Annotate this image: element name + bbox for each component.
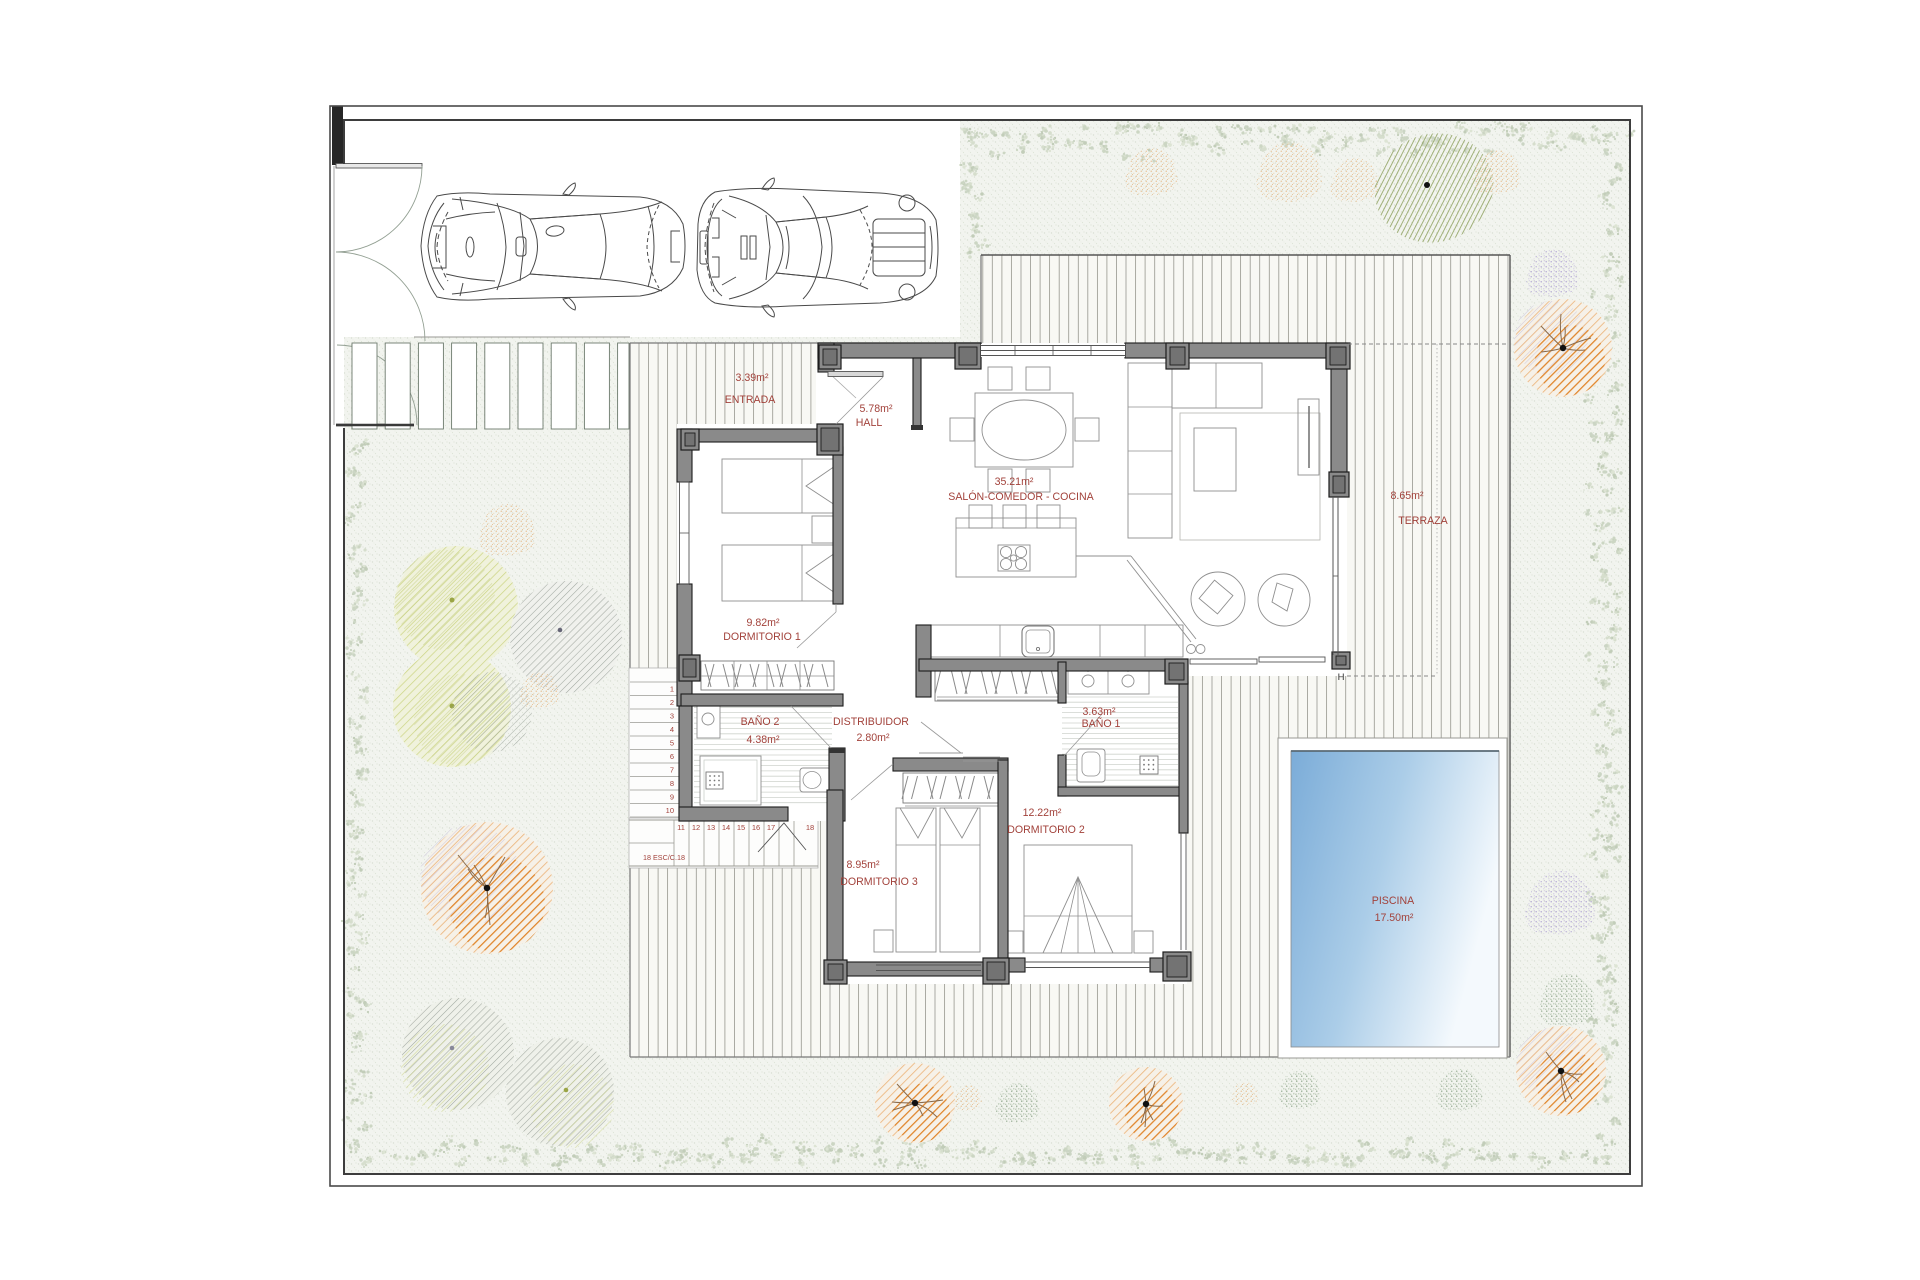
svg-text:8.95m²: 8.95m² xyxy=(847,859,880,871)
svg-text:8.65m²: 8.65m² xyxy=(1391,490,1424,502)
svg-text:17: 17 xyxy=(767,823,775,832)
svg-text:12.22m²: 12.22m² xyxy=(1023,807,1062,819)
svg-text:9: 9 xyxy=(670,793,674,802)
svg-text:DORMITORIO 2: DORMITORIO 2 xyxy=(1007,824,1085,836)
svg-text:2: 2 xyxy=(670,698,674,707)
svg-text:SALÓN-COMEDOR - COCINA: SALÓN-COMEDOR - COCINA xyxy=(948,490,1094,503)
svg-text:11: 11 xyxy=(677,823,685,832)
svg-text:13: 13 xyxy=(707,823,715,832)
svg-text:BAÑO 2: BAÑO 2 xyxy=(741,715,780,728)
svg-text:HALL: HALL xyxy=(856,417,883,429)
svg-text:18 ESC/C.18: 18 ESC/C.18 xyxy=(643,853,685,862)
svg-text:2.80m²: 2.80m² xyxy=(857,732,890,744)
svg-text:5.78m²: 5.78m² xyxy=(860,403,893,415)
svg-text:PISCINA: PISCINA xyxy=(1372,895,1415,907)
svg-text:DISTRIBUIDOR: DISTRIBUIDOR xyxy=(833,716,909,728)
svg-text:18: 18 xyxy=(806,823,814,832)
svg-text:15: 15 xyxy=(737,823,745,832)
svg-text:9.82m²: 9.82m² xyxy=(747,617,780,629)
svg-text:ENTRADA: ENTRADA xyxy=(725,394,777,406)
svg-text:7: 7 xyxy=(670,766,674,775)
svg-text:8: 8 xyxy=(670,779,674,788)
svg-text:12: 12 xyxy=(692,823,700,832)
svg-text:16: 16 xyxy=(752,823,760,832)
svg-text:35.21m²: 35.21m² xyxy=(995,476,1034,488)
svg-text:TERRAZA: TERRAZA xyxy=(1398,515,1448,527)
svg-text:3: 3 xyxy=(670,712,674,721)
svg-text:3.63m²: 3.63m² xyxy=(1083,706,1116,718)
svg-text:DORMITORIO 1: DORMITORIO 1 xyxy=(723,631,801,643)
svg-text:BAÑO 1: BAÑO 1 xyxy=(1082,717,1121,730)
svg-text:5: 5 xyxy=(670,739,674,748)
svg-text:14: 14 xyxy=(722,823,730,832)
svg-text:10: 10 xyxy=(666,806,674,815)
svg-text:4: 4 xyxy=(670,725,674,734)
svg-text:6: 6 xyxy=(670,752,674,761)
svg-text:4.38m²: 4.38m² xyxy=(747,734,780,746)
svg-text:DORMITORIO 3: DORMITORIO 3 xyxy=(840,876,918,888)
svg-text:1: 1 xyxy=(670,685,674,694)
svg-text:17.50m²: 17.50m² xyxy=(1375,912,1414,924)
svg-text:H: H xyxy=(1338,672,1345,683)
svg-text:3.39m²: 3.39m² xyxy=(736,372,769,384)
